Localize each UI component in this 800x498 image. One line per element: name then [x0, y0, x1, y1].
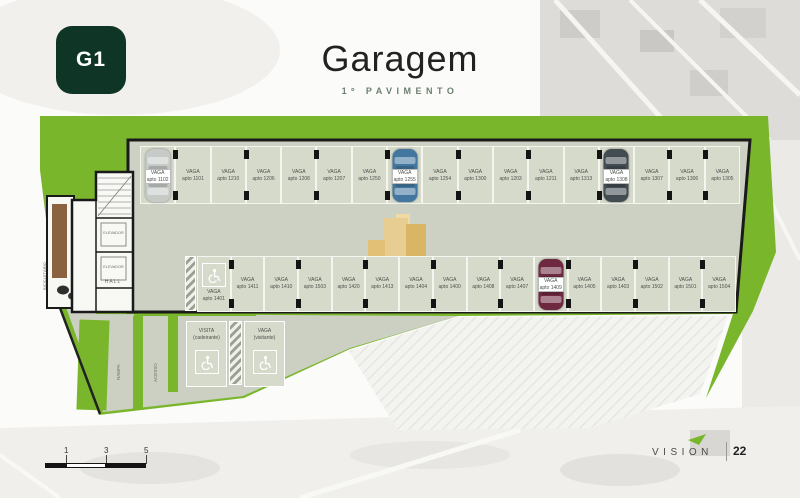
parking-spot-label: VAGAapto 1208: [282, 169, 315, 182]
shrub-icon: [57, 286, 69, 295]
pillar: [244, 150, 249, 159]
parking-spot-label: VAGAapto 1502: [636, 277, 668, 290]
accessible-spot-marker: [202, 263, 226, 287]
wheelchair-icon: [257, 355, 272, 370]
pillar: [633, 260, 638, 269]
pillar: [566, 260, 571, 269]
pillar: [456, 191, 461, 200]
pillar: [314, 191, 319, 200]
parking-spot-label: VAGAapto 1313: [565, 169, 598, 182]
parking-spot: VAGAapto 1254: [422, 146, 457, 204]
parking-spot-label: VAGAapto 1407: [501, 277, 533, 290]
parking-spot-label: VAGAapto 1405: [569, 277, 601, 290]
pillar: [314, 150, 319, 159]
parking-spot: VAGAapto 1400: [433, 256, 467, 312]
parking-spot-label: VAGAapto 1504: [703, 277, 735, 290]
ramp-green-strip: [133, 316, 143, 410]
pillar: [431, 299, 436, 308]
brochure-page: G1 Garagem 1º PAVIMENTO VAGAapto 1102VAG…: [0, 0, 800, 498]
dock-label: BICICLETÁRIO: [42, 218, 47, 290]
parking-spot-label: VAGAapto 1401: [198, 289, 230, 302]
scale-bar: 1 3 5: [45, 446, 155, 472]
parking-spot: VAGAapto 1207: [316, 146, 351, 204]
parking-spot-label: VAGAapto 1308: [600, 169, 633, 184]
parking-row-bottom: VAGAapto 1401VAGAapto 1411VAGAapto 1410V…: [197, 256, 736, 312]
parking-spot-label: VAGAapto 1206: [247, 169, 280, 182]
parking-spot-label: VAGAapto 1305: [706, 169, 739, 182]
parking-spot-label: VAGAapto 1250: [353, 169, 386, 182]
parking-spot: VAGAapto 1405: [568, 256, 602, 312]
pillar: [229, 260, 234, 269]
parking-spot: VAGAapto 1306: [669, 146, 704, 204]
scale-tick-label: 1: [64, 446, 68, 455]
parking-spot: VAGAapto 1420: [332, 256, 366, 312]
pillar: [244, 191, 249, 200]
parking-spot: VAGAapto 1403: [601, 256, 635, 312]
parking-spot: VAGAapto 1408: [467, 256, 501, 312]
parking-spot: VAGAapto 1101: [175, 146, 210, 204]
pillar: [385, 191, 390, 200]
parking-spot: VAGAapto 1102: [140, 146, 175, 204]
ramp-green-strip: [168, 316, 178, 392]
pillar: [296, 260, 301, 269]
parking-spot-label: VAGAapto 1307: [635, 169, 668, 182]
wheelchair-icon: [206, 268, 221, 283]
parking-spot: VAGAapto 1305: [705, 146, 740, 204]
scale-tick-label: 5: [144, 446, 148, 455]
no-parking-hatch: [229, 321, 242, 385]
accessible-spot-marker: [195, 350, 219, 374]
visitor-spot-label: VAGA(visitante): [245, 328, 284, 341]
hall-label: HALL: [88, 279, 138, 285]
parking-spot: VAGAapto 1502: [635, 256, 669, 312]
pillar: [597, 150, 602, 159]
visitor-spot-label: VISITA(cadeirante): [187, 328, 226, 341]
pillar: [173, 191, 178, 200]
visitor-parking-spot: VISITA(cadeirante): [186, 321, 227, 387]
elevator-label: ELEVADOR: [101, 265, 126, 269]
parking-row-top: VAGAapto 1102VAGAapto 1101VAGAapto 1210V…: [140, 146, 740, 204]
parking-spot: VAGAapto 1203: [493, 146, 528, 204]
page-header: Garagem 1º PAVIMENTO: [0, 38, 800, 96]
parking-spot-label: VAGAapto 1503: [299, 277, 331, 290]
parking-spot-label: VAGAapto 1210: [212, 169, 245, 182]
pillar: [703, 191, 708, 200]
pillar: [385, 150, 390, 159]
parking-spot-label: VAGAapto 1300: [459, 169, 492, 182]
lane-label: RAMPA: [116, 330, 121, 380]
pillar: [526, 191, 531, 200]
parking-spot-label: VAGAapto 1101: [176, 169, 209, 182]
parking-spot-label: VAGAapto 1211: [529, 169, 562, 182]
pillar: [296, 299, 301, 308]
parking-spot: VAGAapto 1313: [564, 146, 599, 204]
parking-spot: VAGAapto 1501: [669, 256, 703, 312]
pillar: [667, 191, 672, 200]
parking-spot: VAGAapto 1409: [534, 256, 568, 312]
pillar: [456, 150, 461, 159]
pillar: [597, 191, 602, 200]
parking-spot-label: VAGAapto 1409: [535, 277, 567, 292]
parking-spot: VAGAapto 1413: [365, 256, 399, 312]
parking-spot: VAGAapto 1308: [599, 146, 634, 204]
parking-spot: VAGAapto 1404: [399, 256, 433, 312]
footer-divider: [726, 442, 727, 461]
parking-spot-label: VAGAapto 1306: [670, 169, 703, 182]
wheelchair-icon: [199, 355, 214, 370]
parking-spot-label: VAGAapto 1255: [388, 169, 421, 184]
parking-spot: VAGAapto 1250: [352, 146, 387, 204]
parking-spot: VAGAapto 1210: [211, 146, 246, 204]
parking-spot-label: VAGAapto 1420: [333, 277, 365, 290]
parking-spot: VAGAapto 1300: [458, 146, 493, 204]
page-number: 22: [733, 444, 746, 458]
pillar: [431, 260, 436, 269]
pillar: [498, 260, 503, 269]
pillar: [526, 150, 531, 159]
parking-spot: VAGAapto 1503: [298, 256, 332, 312]
pillar: [700, 299, 705, 308]
parking-spot-label: VAGAapto 1404: [400, 277, 432, 290]
no-parking-hatch: [185, 256, 196, 311]
parking-spot: VAGAapto 1208: [281, 146, 316, 204]
parking-spot-label: VAGAapto 1102: [141, 169, 174, 184]
page-subtitle: 1º PAVIMENTO: [0, 86, 800, 96]
pillar: [363, 299, 368, 308]
pillar: [229, 299, 234, 308]
parking-spot: VAGAapto 1211: [528, 146, 563, 204]
parking-spot-label: VAGAapto 1254: [423, 169, 456, 182]
pillar: [703, 150, 708, 159]
accessible-spot-marker: [253, 350, 277, 374]
parking-spot-label: VAGAapto 1400: [434, 277, 466, 290]
elevator-label: ELEVADOR: [101, 231, 126, 235]
parking-spot-label: VAGAapto 1403: [602, 277, 634, 290]
lane-label: ACESSO: [153, 332, 158, 382]
parking-spot: VAGAapto 1307: [634, 146, 669, 204]
parking-spot-label: VAGAapto 1410: [265, 277, 297, 290]
parking-spot: VAGAapto 1411: [231, 256, 265, 312]
parking-spot-label: VAGAapto 1203: [494, 169, 527, 182]
parking-spot-label: VAGAapto 1408: [468, 277, 500, 290]
parking-spot: VAGAapto 1401: [197, 256, 231, 312]
parking-spot-label: VAGAapto 1411: [232, 277, 264, 290]
pillar: [667, 150, 672, 159]
page-title: Garagem: [0, 38, 800, 80]
brand-wordmark: VISION: [652, 447, 713, 458]
parking-spot-label: VAGAapto 1413: [366, 277, 398, 290]
pillar: [498, 299, 503, 308]
pillar: [700, 260, 705, 269]
parking-spot-label: VAGAapto 1501: [670, 277, 702, 290]
scale-tick-label: 3: [104, 446, 108, 455]
parking-spot-label: VAGAapto 1207: [317, 169, 350, 182]
parking-spot: VAGAapto 1504: [702, 256, 736, 312]
visitor-parking-spot: VAGA(visitante): [244, 321, 285, 387]
parking-spot: VAGAapto 1206: [246, 146, 281, 204]
parking-spot: VAGAapto 1410: [264, 256, 298, 312]
parking-spot: VAGAapto 1255: [387, 146, 422, 204]
pillar: [633, 299, 638, 308]
parking-spot: VAGAapto 1407: [500, 256, 534, 312]
pillar: [173, 150, 178, 159]
pillar: [363, 260, 368, 269]
pillar: [566, 299, 571, 308]
